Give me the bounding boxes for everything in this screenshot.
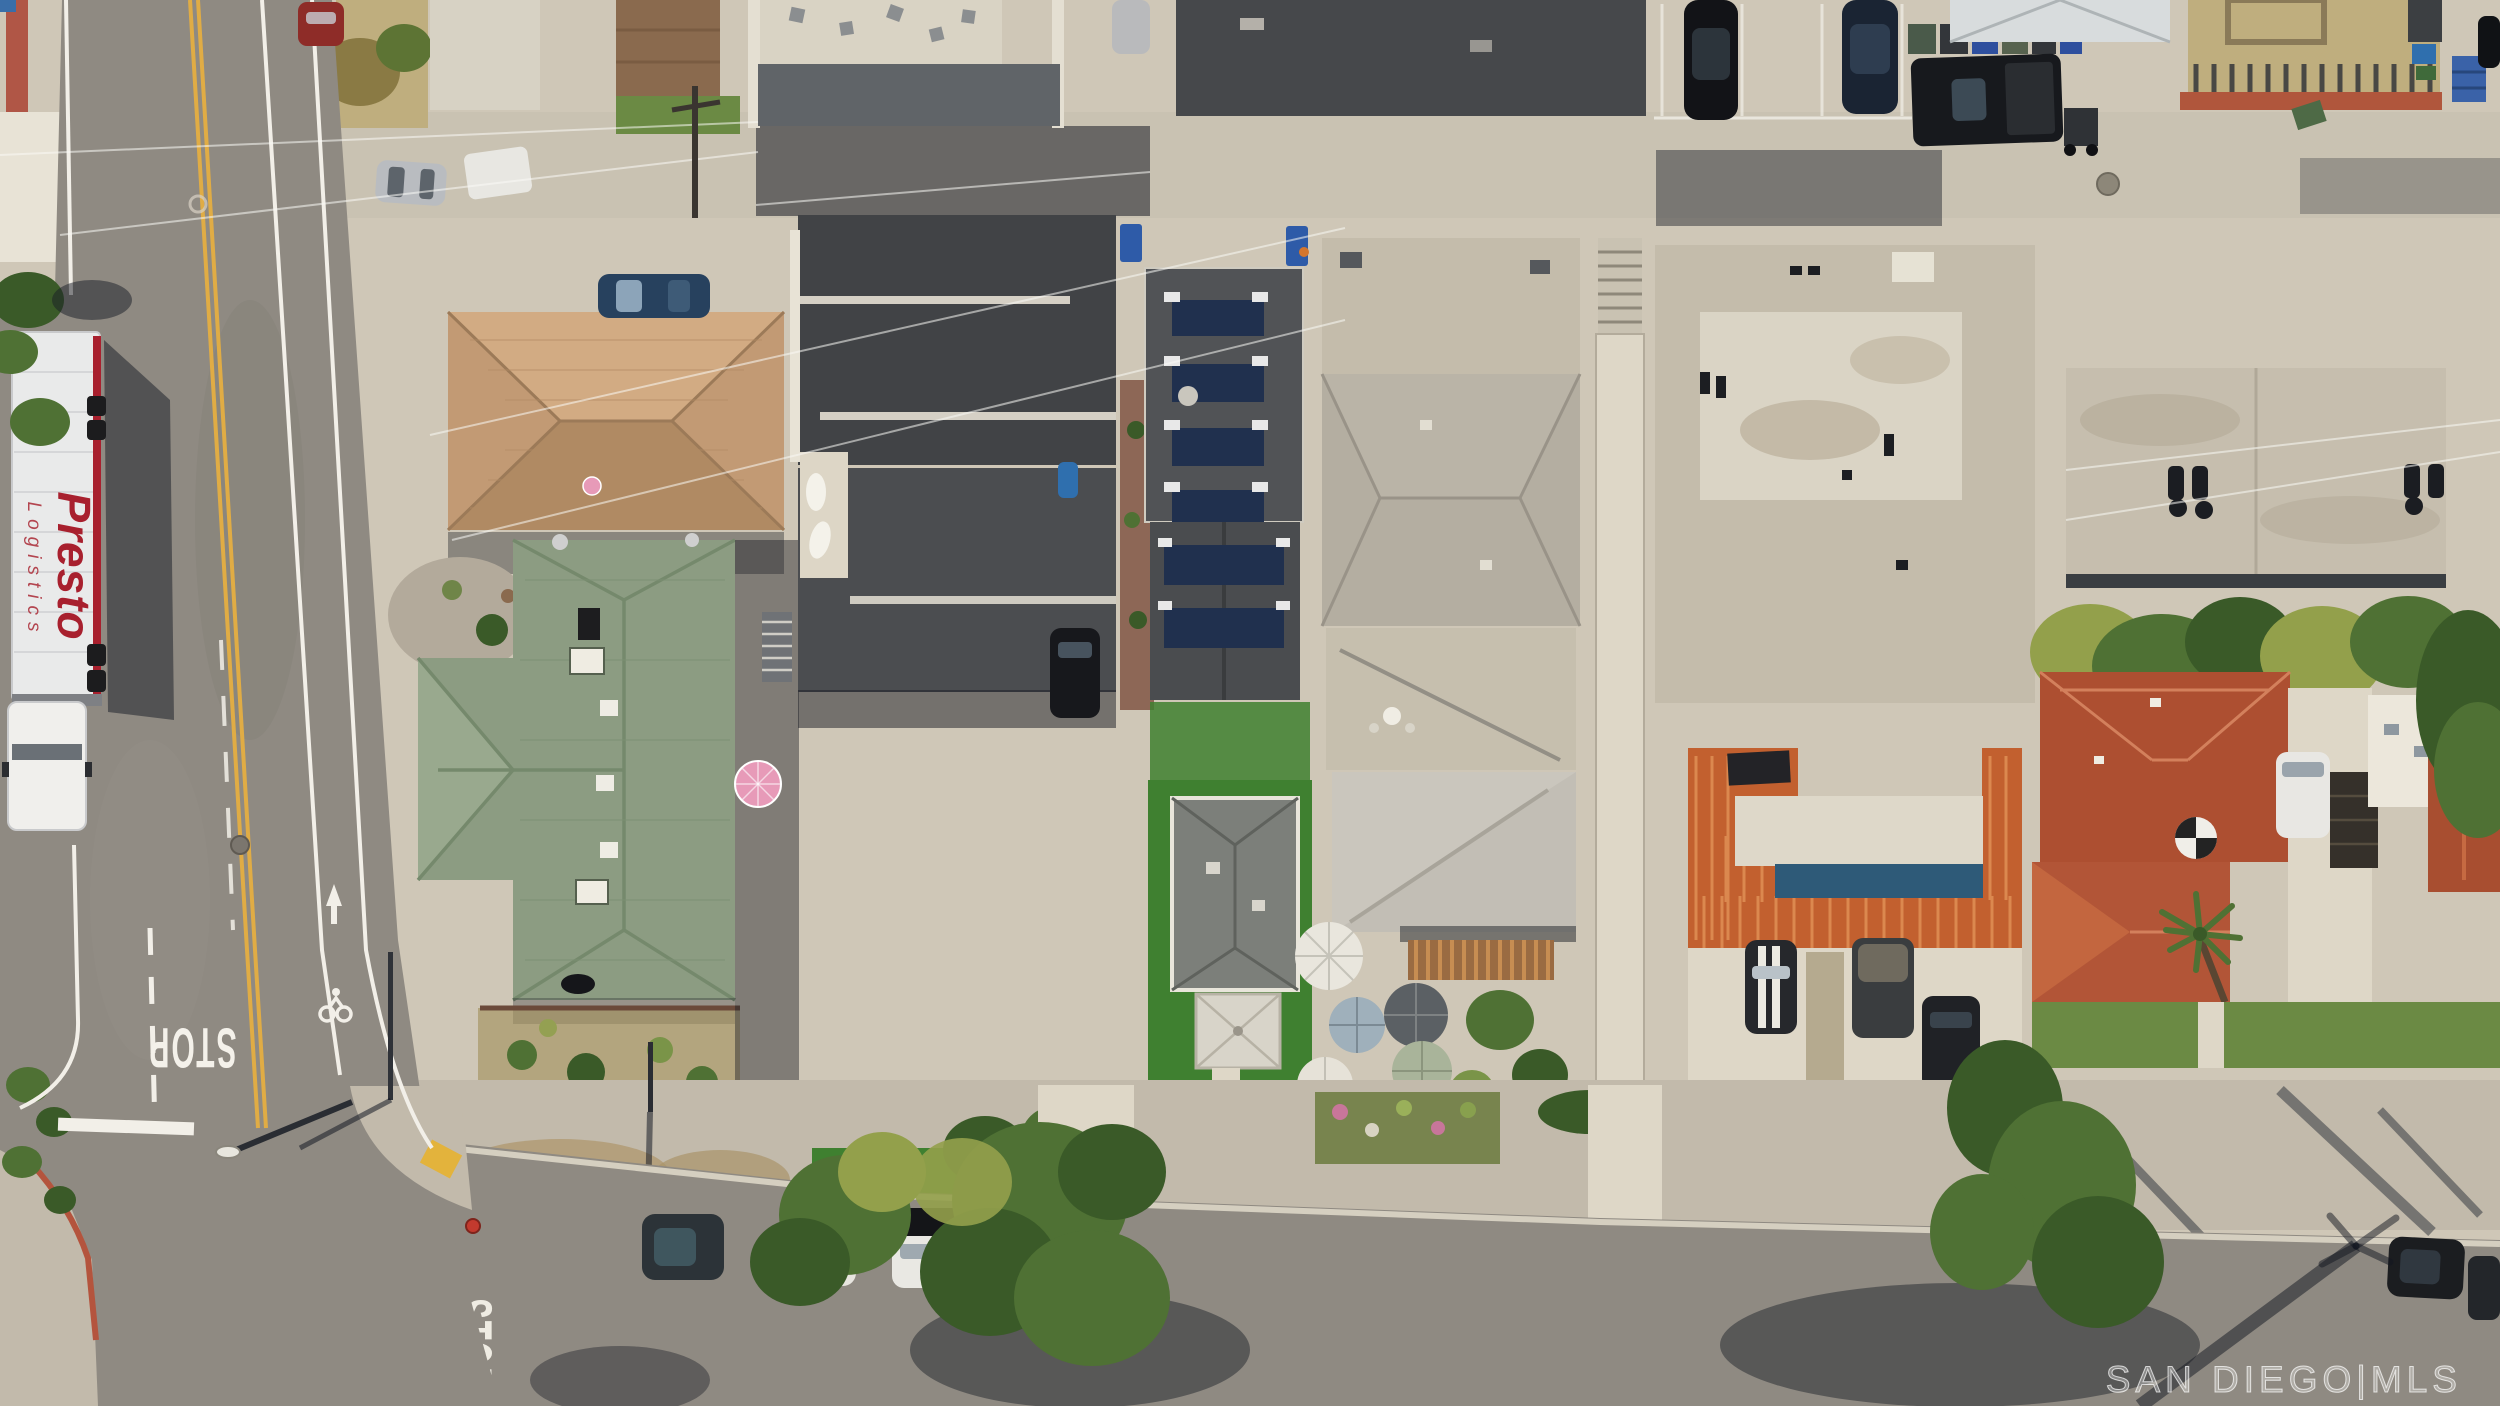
truck-shadow — [104, 340, 174, 720]
aerial-photo: STOP — [0, 0, 2500, 1406]
wood-pergola — [1408, 940, 1554, 980]
umbrella-slate — [1329, 997, 1385, 1053]
topleft-red-wall — [6, 0, 28, 112]
white-car-driveway — [2276, 752, 2330, 838]
long-walkway — [1596, 334, 1644, 1134]
orange-cone — [1299, 247, 1309, 257]
manhole-cover — [231, 836, 249, 854]
gray-car-driving — [375, 160, 448, 207]
light-gable-roof — [1950, 0, 2170, 42]
satellite-dish — [685, 533, 699, 547]
flower-garden-strip — [1315, 1092, 1500, 1164]
blue-car-alley — [598, 274, 710, 318]
ac-unit-round — [1178, 386, 1198, 406]
satellite-dish — [552, 534, 568, 550]
black-car-parked — [1684, 0, 1738, 120]
mini-car-striped — [1745, 940, 1797, 1034]
small-pink-umbrella — [583, 477, 601, 495]
gravel-strip — [1806, 952, 1844, 1084]
backyard-patio — [1326, 628, 1576, 770]
right-flat-roof-building — [2066, 368, 2446, 588]
topleft-blue-awning — [0, 0, 16, 12]
charcoal-flat-roof-buildings — [790, 215, 1154, 728]
topleft-white-roof — [0, 112, 62, 262]
fire-hydrant — [466, 1219, 480, 1233]
hip-roof-upper — [1322, 374, 1580, 626]
umbrella-white — [1295, 922, 1363, 990]
white-van — [463, 146, 533, 200]
tarp-covered-car — [1852, 938, 1914, 1038]
silver-car-top — [1112, 0, 1150, 54]
umbrella-dark — [1384, 983, 1448, 1047]
pinwheel-umbrella — [2175, 817, 2217, 859]
truck-cab — [2, 702, 92, 830]
roof-vent-oval — [561, 974, 595, 994]
driveway-apron — [1588, 1085, 1662, 1235]
dark-car-bottom-corner — [2468, 1256, 2500, 1320]
blue-shade-section — [1775, 864, 1983, 898]
chimney — [570, 648, 604, 674]
white-center-roof — [1735, 796, 1983, 866]
truck-branding: Presto Logistics — [23, 491, 100, 640]
tile-roof-solar — [1727, 750, 1791, 785]
stairs — [1598, 238, 1642, 334]
truck-brand-name: Presto — [48, 491, 100, 640]
solar-gable-section — [1150, 522, 1300, 700]
black-pickup-truck — [1911, 53, 2064, 146]
dark-flat-roof-top — [1176, 0, 1646, 116]
blue-spa — [1058, 462, 1078, 498]
black-suv-driveway — [1050, 628, 1100, 718]
black-car-edge — [2478, 16, 2500, 68]
dark-suv-bottom-right — [2386, 1236, 2465, 1300]
stop-marking-left: STOP — [147, 1016, 236, 1080]
side-yard-east — [735, 540, 799, 1100]
gray-hip-roof-cottage — [1172, 798, 1298, 990]
teal-suv-parked — [642, 1214, 724, 1280]
gable-roof-lower — [1332, 772, 1576, 932]
gravel-front-yard — [388, 557, 532, 673]
chimney-2 — [576, 880, 608, 904]
manhole-cover — [2097, 173, 2119, 195]
alley-road — [0, 112, 2500, 226]
courtyard-turf — [1150, 702, 1310, 782]
front-lawn — [2032, 1002, 2500, 1068]
lawn-walkway — [2198, 1002, 2224, 1068]
brown-shingle-roof — [616, 0, 720, 98]
solar-water-panel — [578, 608, 600, 640]
small-tree — [376, 24, 432, 72]
navy-car-parked — [1842, 0, 1898, 114]
white-patio-lounges — [800, 452, 848, 578]
truck-brand-sub: Logistics — [23, 502, 44, 639]
white-gazebo — [1196, 994, 1280, 1068]
mls-watermark: SAN DIEGO|MLS — [2106, 1359, 2462, 1400]
red-car — [298, 2, 344, 46]
